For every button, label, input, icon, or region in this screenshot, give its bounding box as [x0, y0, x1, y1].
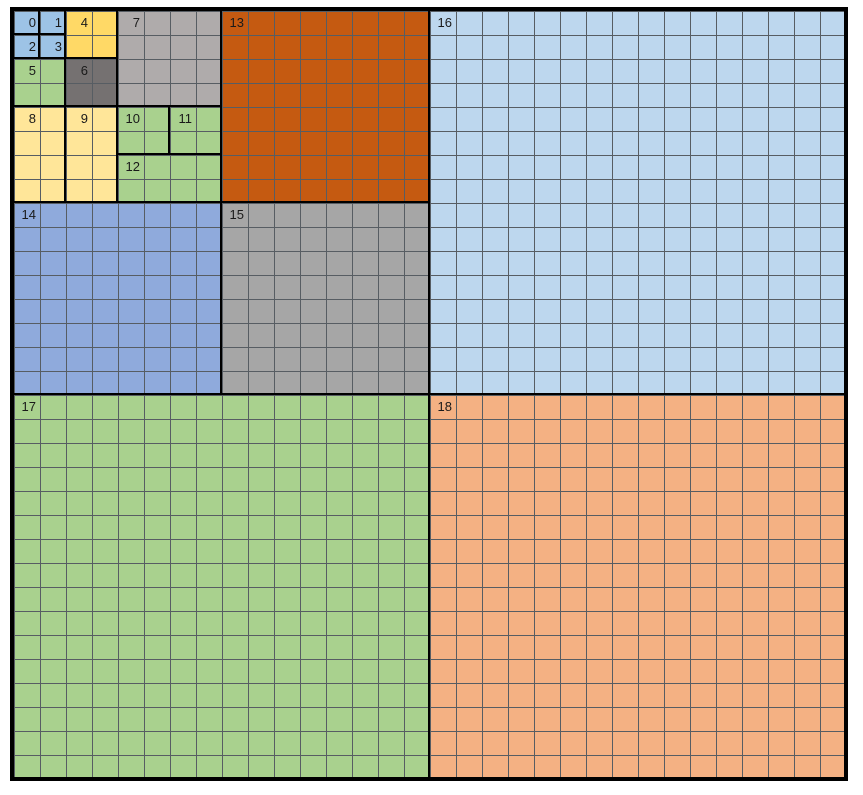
- grid-block-12: 12: [117, 154, 221, 202]
- grid-block-1: 1: [39, 10, 65, 34]
- block-label: 0: [14, 11, 40, 35]
- block-label: 11: [170, 107, 196, 131]
- grid-block-11: 11: [169, 106, 221, 154]
- block-label: 14: [14, 203, 40, 227]
- grid-block-2: 2: [13, 34, 39, 58]
- block-label: 17: [14, 395, 40, 419]
- block-label: 12: [118, 155, 144, 179]
- block-label: 18: [430, 395, 456, 419]
- block-label: 4: [66, 11, 92, 35]
- grid-block-16: 16: [429, 10, 845, 394]
- block-label: 1: [40, 11, 66, 35]
- grid-block-5: 5: [13, 58, 65, 106]
- grid-block-17: 17: [13, 394, 429, 778]
- grid-block-6: 6: [65, 58, 117, 106]
- block-label: 7: [118, 11, 144, 35]
- block-label: 8: [14, 107, 40, 131]
- grid-block-3: 3: [39, 34, 65, 58]
- grid-block-13: 13: [221, 10, 429, 202]
- grid-diagram: 0123456789101112131415161718: [10, 7, 848, 781]
- grid-block-8: 8: [13, 106, 65, 202]
- grid-block-4: 4: [65, 10, 117, 58]
- grid-block-7: 7: [117, 10, 221, 106]
- block-label: 3: [40, 35, 66, 59]
- grid-block-0: 0: [13, 10, 39, 34]
- block-label: 2: [14, 35, 40, 59]
- block-label: 9: [66, 107, 92, 131]
- block-label: 16: [430, 11, 456, 35]
- block-label: 5: [14, 59, 40, 83]
- block-label: 13: [222, 11, 248, 35]
- block-label: 6: [66, 59, 92, 83]
- grid-block-10: 10: [117, 106, 169, 154]
- grid-block-18: 18: [429, 394, 845, 778]
- grid-block-9: 9: [65, 106, 117, 202]
- grid-block-14: 14: [13, 202, 221, 394]
- block-label: 15: [222, 203, 248, 227]
- grid-block-15: 15: [221, 202, 429, 394]
- block-label: 10: [118, 107, 144, 131]
